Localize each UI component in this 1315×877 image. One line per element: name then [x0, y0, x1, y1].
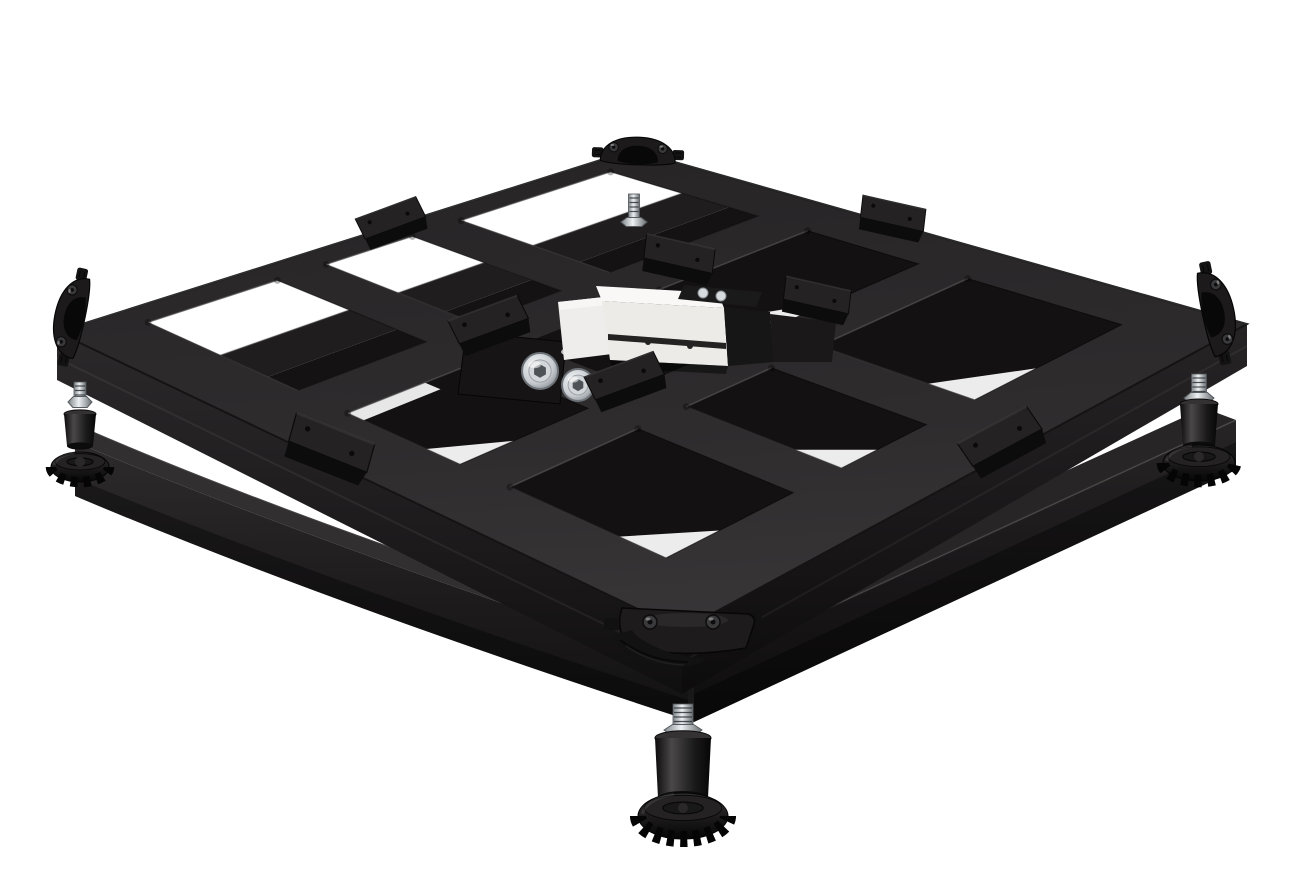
foot-body — [64, 414, 96, 446]
threaded-rod — [629, 194, 640, 218]
bolt-head — [716, 291, 726, 301]
hex-nut — [68, 397, 92, 408]
load-cell-front — [602, 301, 728, 366]
product-photo — [0, 0, 1315, 877]
scale-base-illustration — [0, 0, 1315, 877]
load-cell-end-plate — [724, 307, 774, 366]
socket-head-bolt — [522, 353, 558, 389]
hex-nut — [621, 218, 647, 227]
foot-body — [655, 738, 711, 798]
bolt-head — [698, 288, 708, 298]
foot-body — [1180, 404, 1218, 446]
